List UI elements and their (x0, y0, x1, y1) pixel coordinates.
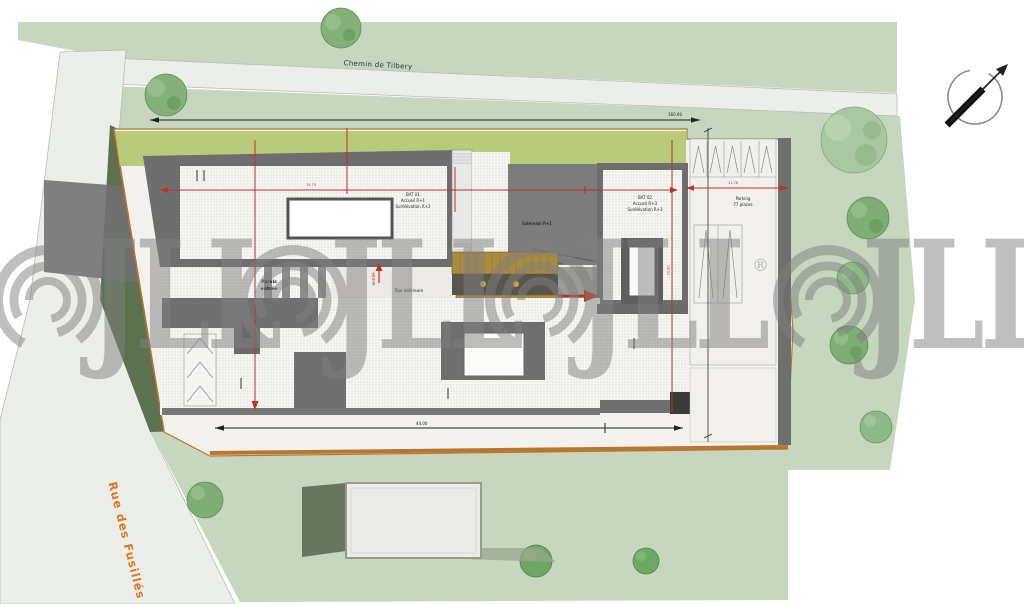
bat02-lower-band (597, 304, 688, 314)
dim-bottom-total: 44.00 (416, 421, 427, 427)
tree (187, 482, 223, 518)
right-dark-band (778, 138, 791, 445)
bat02-label: BAT 02 Accueil R+3 Surélévation R+3 (604, 195, 686, 212)
parking-label: Parking 77 places (712, 196, 774, 208)
lower-bays (184, 334, 216, 406)
extension-roof (508, 164, 600, 265)
bat02-line3: Surélévation R+3 (604, 207, 686, 213)
dim-top-total: 160.00 (668, 112, 682, 118)
tree (837, 262, 869, 294)
mid-court-light (464, 333, 524, 376)
parvis-label: Parvis entrée (250, 280, 288, 293)
extension-label: Extension R+1 (510, 221, 564, 227)
lower-edge-band (162, 408, 600, 415)
tree (847, 197, 889, 239)
dim-site-height: 70.00 (666, 266, 671, 276)
lower-roof-b (294, 352, 346, 414)
inner-street (332, 267, 452, 300)
bat01-line3: Surélévation R+2 (372, 204, 454, 210)
tree (830, 326, 868, 364)
site-plan: Chemin de Tilbery Rue des Fusillés BAT 0… (0, 0, 1024, 604)
parking-line2: 77 places (712, 202, 774, 208)
parvis-line2: entrée (250, 287, 288, 294)
inner-street-label: Rue intérieure (382, 288, 436, 294)
dim-site-width: 15.75 (306, 183, 316, 188)
bat02-court-light (629, 247, 655, 296)
dim-parking-width: 11.78 (728, 181, 738, 186)
lower-roof-a (162, 298, 318, 328)
tree (633, 548, 659, 574)
tree (821, 107, 887, 173)
bat01-label: BAT 01 Accueil R+1 Surélévation R+2 (372, 192, 454, 209)
entry-right-label: entrée (528, 291, 556, 297)
tree (321, 8, 361, 48)
north-arrow-icon (938, 60, 1012, 134)
tree (860, 411, 892, 443)
entry-left-label: entrée (371, 267, 377, 291)
site-plan-drawing (0, 0, 1024, 604)
tree (145, 74, 187, 116)
mid-terrace (472, 152, 510, 265)
lower-dark-square (234, 328, 260, 354)
parking-area (690, 138, 791, 445)
